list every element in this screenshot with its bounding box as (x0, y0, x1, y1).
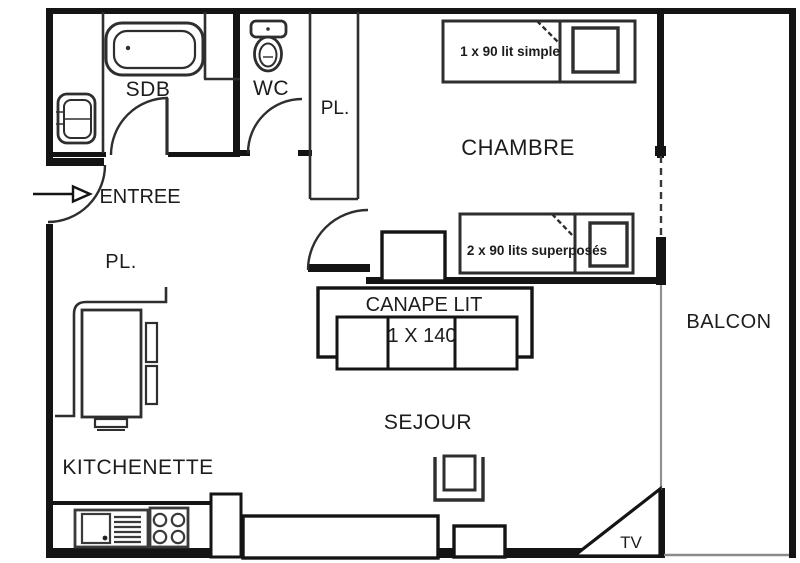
armchair (435, 456, 483, 500)
sideboard-long (243, 516, 438, 558)
kitchen-chair-right-2 (146, 366, 157, 404)
room-label-kitchenette: KITCHENETTE (62, 456, 213, 479)
wall-sdb-wc-divider (233, 12, 240, 157)
kitchen-chair-bottom (95, 419, 127, 427)
kitchen-sink-drain (103, 536, 108, 541)
armchair-back (444, 456, 475, 490)
bathtub (106, 23, 203, 75)
closet-label-corridor: PL. (321, 98, 350, 119)
balcony-openings (661, 156, 789, 555)
door-arc-chambre (308, 210, 368, 270)
bathtub-inner (114, 31, 195, 68)
kitchen-sink-unit (75, 510, 148, 547)
bathroom-sink (56, 94, 95, 143)
entry-arrow-head (73, 187, 90, 202)
bunk-bed-label: 2 x 90 lits superposés (467, 243, 607, 258)
sofa-size-label: 1 X 140 (388, 325, 457, 347)
burner-4 (172, 531, 184, 543)
wall-left-upper (46, 8, 53, 166)
room-label-sdb: SDB (126, 78, 171, 101)
wall-sdb-bottom-left (46, 152, 106, 157)
closet-label-entry: PL. (105, 251, 137, 273)
tv-stand (574, 489, 660, 556)
burner-2 (172, 514, 184, 526)
kitchen-counter-outline (55, 287, 166, 416)
wall-right (789, 8, 796, 558)
sideboard-small (454, 526, 505, 557)
burner-3 (154, 531, 166, 543)
bunk-bed-fold (552, 214, 575, 238)
bedside-table (382, 232, 445, 281)
room-label-sejour: SEJOUR (384, 411, 472, 434)
single-bed-fold (537, 21, 560, 44)
kitchen-table-set (82, 310, 157, 430)
toilet (251, 21, 286, 71)
toilet-tank-button (266, 27, 270, 31)
wall-balcony-upper (657, 12, 664, 158)
partition-lines (55, 12, 358, 416)
stove (150, 508, 188, 547)
entry-arrow (33, 187, 90, 202)
door-arc-sdb (111, 98, 168, 155)
door-leaf-chambre (308, 264, 370, 272)
bathtub-drain (126, 46, 130, 50)
single-bed-label: 1 x 90 lit simple (460, 44, 560, 59)
sofa-title-label: CANAPE LIT (366, 294, 483, 316)
floor-plan: 1 x 90 lit simple 2 x 90 lits superposés… (0, 0, 800, 563)
burner-1 (154, 514, 166, 526)
room-label-entree: ENTREE (99, 186, 180, 208)
single-bed-pillow (573, 28, 618, 72)
floor-plan-svg: 1 x 90 lit simple 2 x 90 lits superposés… (0, 0, 800, 563)
tv-label: TV (620, 533, 642, 552)
wall-top (46, 8, 796, 14)
room-label-chambre: CHAMBRE (461, 135, 575, 160)
wall-sdb-bottom-right (168, 152, 240, 157)
door-leaf-entree (46, 158, 104, 166)
wall-pillar-kitchen (211, 494, 241, 557)
wall-balcony-notch (655, 146, 666, 156)
toilet-bowl-inner (260, 44, 277, 67)
sofa-bed: CANAPE LIT 1 X 140 (318, 288, 532, 369)
room-label-wc: WC (253, 77, 289, 100)
kitchen-chair-right-1 (146, 323, 157, 362)
kitchen-table (82, 310, 141, 417)
wall-left-lower (46, 224, 53, 558)
door-arc-wc (248, 99, 302, 153)
room-label-balcon: BALCON (686, 311, 771, 333)
